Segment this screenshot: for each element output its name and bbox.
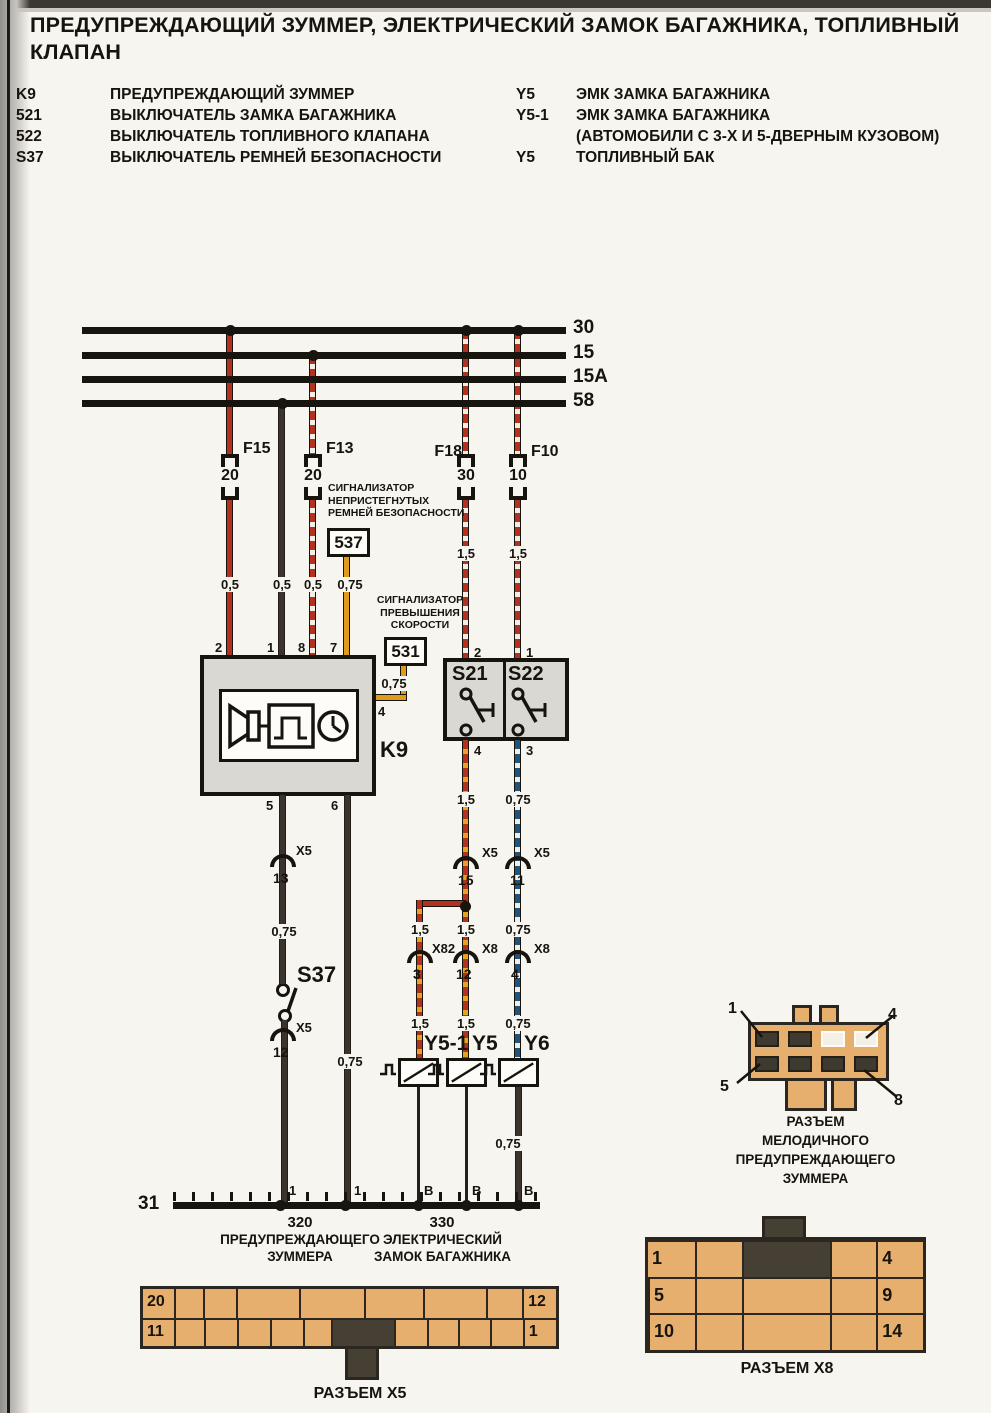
connector-symbol-x5-11	[505, 856, 531, 869]
connector-pin: 3	[413, 966, 421, 982]
fuse-f10-rating: 10	[509, 467, 527, 485]
wire-537-to-k9	[343, 556, 350, 655]
fuse-f15-symbol	[221, 454, 239, 467]
connector-symbol-x8-12	[453, 950, 479, 963]
bus-58	[82, 400, 566, 407]
ground-pin: 1	[354, 1183, 361, 1198]
wire-58-to-k9	[278, 403, 285, 655]
buzzer-pin-5: 5	[720, 1078, 729, 1096]
junction-dot	[460, 901, 471, 912]
x8-cell: 14	[876, 1313, 923, 1350]
wire-gauge: 0,75	[269, 924, 298, 939]
wire-branch-horizontal	[416, 900, 466, 907]
x5-cell	[174, 1289, 204, 1318]
x5-cell	[299, 1289, 363, 1318]
x5-cell	[364, 1289, 423, 1318]
k9-pin-4: 4	[378, 704, 385, 719]
x5-row-top: 20 12	[143, 1289, 556, 1318]
x5-cell	[270, 1318, 303, 1347]
wire-y51-ground	[417, 1087, 420, 1204]
speed-warning-caption: СИГНАЛИЗАТОР ПРЕВЫШЕНИЯ СКОРОСТИ	[358, 594, 482, 632]
junction-dot	[308, 350, 319, 361]
ground-pin: В	[524, 1183, 533, 1198]
x5-cell	[394, 1318, 427, 1347]
junction-dot	[461, 1200, 472, 1211]
k9-pin-5: 5	[266, 798, 273, 813]
buzzer-pin-4: 4	[888, 1006, 897, 1024]
buzzer-connector-title: РАЗЪЕМ МЕЛОДИЧНОГО ПРЕДУПРЕЖДАЮЩЕГО ЗУММ…	[733, 1112, 898, 1188]
s21-label: S21	[452, 663, 488, 686]
s22-label: S22	[508, 663, 544, 686]
fuse-f15-symbol	[221, 487, 239, 500]
bus-15a-label: 15A	[573, 366, 608, 388]
wire-gauge: 1,5	[455, 792, 477, 807]
x8-connector-title: РАЗЪЕМ X8	[707, 1360, 867, 1378]
junction-dot	[461, 325, 472, 336]
connector-symbol-x5-15	[453, 856, 479, 869]
fuse-f10-label: F10	[531, 443, 559, 461]
junction-dot	[413, 1200, 424, 1211]
wire-s22-out	[514, 740, 521, 1062]
y51-pulse-icon	[379, 1062, 397, 1078]
ground-point-id: 330	[412, 1214, 472, 1231]
x8-cell	[742, 1313, 830, 1350]
legend-desc: ЭМК ЗАМКА БАГАЖНИКА	[576, 107, 770, 125]
junction-dot	[277, 398, 288, 409]
legend-desc: ПРЕДУПРЕЖДАЮЩИЙ ЗУММЕР	[110, 86, 354, 104]
legend-code: Y5	[516, 149, 535, 167]
wire-f15-feed	[226, 330, 233, 456]
wire-gauge: 0,75	[335, 577, 364, 592]
legend-desc: ТОПЛИВНЫЙ БАК	[576, 149, 715, 167]
wire-gauge: 1,5	[455, 546, 477, 561]
wiring-diagram-page: ПРЕДУПРЕЖДАЮЩИЙ ЗУММЕР, ЭЛЕКТРИЧЕСКИЙ ЗА…	[0, 0, 991, 1413]
s21-switch-icon	[446, 686, 498, 744]
y5-label: Y5	[472, 1032, 498, 1056]
legend-desc: ВЫКЛЮЧАТЕЛЬ ЗАМКА БАГАЖНИКА	[110, 107, 396, 125]
fuse-f13-symbol	[304, 487, 322, 500]
x8-cell	[695, 1313, 742, 1350]
k9-pin-8: 8	[298, 640, 305, 655]
bus-31	[173, 1202, 540, 1209]
wire-f10-to-s22	[514, 499, 521, 658]
wire-f18-feed	[462, 330, 469, 456]
x5-cell	[458, 1318, 489, 1347]
wire-gauge: 1,5	[409, 1016, 431, 1031]
x8-cell: 9	[876, 1277, 923, 1314]
bus-30-label: 30	[573, 317, 594, 339]
fuse-f15-rating: 20	[221, 467, 239, 485]
k9-pin-2: 2	[215, 640, 222, 655]
wire-k9-pin5-down	[279, 795, 286, 986]
x5-cell: 12	[522, 1289, 556, 1318]
x8-keyway-cell	[742, 1240, 830, 1277]
x5-cell: 11	[143, 1318, 174, 1347]
junction-dot	[513, 325, 524, 336]
wire-gauge: 1,5	[507, 546, 529, 561]
legend-desc: (АВТОМОБИЛИ С 3-Х И 5-ДВЕРНЫМ КУЗОВОМ)	[576, 128, 939, 146]
k9-pin-1: 1	[267, 640, 274, 655]
ground-point-id: 320	[270, 1214, 330, 1231]
x8-cell: 5	[648, 1277, 695, 1314]
wire-gauge: 0,75	[503, 792, 532, 807]
s21-pin-bottom: 4	[474, 743, 481, 758]
page-title: ПРЕДУПРЕЖДАЮЩИЙ ЗУММЕР, ЭЛЕКТРИЧЕСКИЙ ЗА…	[30, 12, 970, 66]
k9-pin-7: 7	[330, 640, 337, 655]
fuse-f13-rating: 20	[304, 467, 322, 485]
k9-pin-6: 6	[331, 798, 338, 813]
wire-gauge: 0,5	[302, 577, 324, 592]
ground-pin: В	[472, 1183, 481, 1198]
wire-gauge: 0,75	[503, 1016, 532, 1031]
x8-cell: 4	[876, 1240, 923, 1277]
x5-cell: 1	[523, 1318, 556, 1347]
connector-symbol-x8-4	[505, 950, 531, 963]
connector-pin: 11	[510, 872, 525, 888]
legend-desc: ЭМК ЗАМКА БАГАЖНИКА	[576, 86, 770, 104]
legend-code: 521	[16, 107, 42, 125]
fuse-f18-symbol	[457, 454, 475, 467]
y6-valve-symbol	[498, 1058, 539, 1087]
fuse-f10-symbol	[509, 487, 527, 500]
ground-pin: В	[424, 1183, 433, 1198]
ground-pin: 1	[289, 1183, 296, 1198]
wire-gauge: 1,5	[455, 922, 477, 937]
bus-15	[82, 352, 566, 359]
wire-gauge: 0,75	[379, 676, 408, 691]
x5-cell	[423, 1289, 486, 1318]
connector-pin: 15	[458, 872, 474, 888]
x8-cell: 10	[648, 1313, 695, 1350]
wire-531-to-k9	[372, 694, 407, 701]
junction-dot	[340, 1200, 351, 1211]
wire-gauge: 0,75	[335, 1054, 364, 1069]
connector-name: X8	[482, 941, 498, 956]
connector-name: X82	[432, 941, 455, 956]
bus-15a	[82, 376, 566, 383]
junction-dot	[225, 325, 236, 336]
wire-f10-feed	[514, 330, 521, 456]
k9-buzzer-symbol	[219, 689, 359, 762]
page-left-line	[7, 0, 10, 1413]
x5-cell	[490, 1318, 523, 1347]
y6-label: Y6	[524, 1032, 550, 1056]
x8-cell	[742, 1277, 830, 1314]
connector-name: X5	[296, 1020, 312, 1035]
bus-30	[82, 327, 566, 334]
connector-pin: 4	[511, 966, 519, 982]
x5-cell	[174, 1318, 204, 1347]
s22-switch-icon	[498, 686, 550, 744]
x8-cell	[830, 1313, 877, 1350]
x8-cell: 1	[648, 1240, 695, 1277]
connector-x8-pinout: 1 4 5 9 10 14	[645, 1237, 926, 1353]
legend-code: K9	[16, 86, 36, 104]
legend-code: 522	[16, 128, 42, 146]
x5-cell	[204, 1318, 237, 1347]
x5-cell	[203, 1289, 236, 1318]
s22-pin-bottom: 3	[526, 743, 533, 758]
connector-x5-pinout: 20 12 11 1	[140, 1286, 559, 1349]
x5-cell	[237, 1318, 270, 1347]
belt-warning-caption: СИГНАЛИЗАТОР НЕПРИСТЕГНУТЫХ РЕМНЕЙ БЕЗОП…	[328, 482, 498, 520]
connector-symbol-x82-3	[407, 950, 433, 963]
x5-keyway-tab	[345, 1346, 379, 1380]
wire-gauge: 0,5	[271, 577, 293, 592]
legend-code: Y5	[516, 86, 535, 104]
x8-cell	[695, 1277, 742, 1314]
x8-cell	[695, 1240, 742, 1277]
wire-gauge: 1,5	[455, 1016, 477, 1031]
legend-desc: ВЫКЛЮЧАТЕЛЬ РЕМНЕЙ БЕЗОПАСНОСТИ	[110, 149, 441, 167]
x5-connector-title: РАЗЪЕМ X5	[275, 1385, 445, 1403]
wire-f18-to-s21	[462, 499, 469, 658]
connector-pin: 12	[456, 966, 472, 982]
x8-cell	[830, 1240, 877, 1277]
buzzer-icon	[222, 692, 356, 759]
junction-dot	[513, 1200, 524, 1211]
x5-cell	[427, 1318, 458, 1347]
connector-pin: 13	[273, 870, 289, 886]
belt-warning-box: 537	[327, 528, 370, 557]
bus-31-label: 31	[138, 1193, 159, 1215]
connector-pin: 12	[273, 1044, 289, 1060]
x8-cell	[830, 1277, 877, 1314]
wire-k9-pin6-down	[344, 795, 351, 1204]
wire-gauge: 0,75	[493, 1136, 522, 1151]
legend-code: S37	[16, 149, 44, 167]
x5-keyway-cell	[331, 1318, 394, 1347]
legend-code: Y5-1	[516, 107, 549, 125]
connector-name: X5	[534, 845, 550, 860]
page-left-margin	[0, 0, 30, 1413]
wire-gauge: 0,5	[219, 577, 241, 592]
x5-cell	[303, 1318, 331, 1347]
fuse-f13-label: F13	[326, 440, 354, 458]
bus-15-label: 15	[573, 342, 594, 364]
connector-name: X8	[534, 941, 550, 956]
bus-58-label: 58	[573, 390, 594, 412]
k9-label: K9	[380, 737, 408, 763]
junction-dot	[275, 1200, 286, 1211]
x5-cell	[236, 1289, 299, 1318]
connector-symbol-x5-13	[270, 854, 296, 867]
x5-cell	[486, 1289, 522, 1318]
buzzer-pin-8: 8	[894, 1092, 903, 1110]
wire-gauge: 0,75	[503, 922, 532, 937]
speed-warning-box: 531	[384, 637, 427, 666]
x5-cell: 20	[143, 1289, 174, 1318]
fuse-f10-symbol	[509, 454, 527, 467]
y5-pulse-icon	[427, 1062, 445, 1078]
buzzer-pin-1: 1	[728, 1000, 737, 1018]
buzzer-leader-lines	[718, 995, 908, 1110]
y6-pulse-icon	[479, 1062, 497, 1078]
fuse-f15-label: F15	[243, 440, 271, 458]
ground-point-name: ЭЛЕКТРИЧЕСКИЙ ЗАМОК БАГАЖНИКА	[330, 1231, 555, 1265]
x5-row-bottom: 11 1	[143, 1318, 556, 1347]
page-top-edge	[0, 0, 991, 8]
wire-y5-ground	[465, 1087, 468, 1204]
y51-label: Y5-1	[424, 1032, 468, 1056]
connector-name: X5	[296, 843, 312, 858]
connector-name: X5	[482, 845, 498, 860]
fuse-f13-symbol	[304, 454, 322, 467]
legend-desc: ВЫКЛЮЧАТЕЛЬ ТОПЛИВНОГО КЛАПАНА	[110, 128, 430, 146]
wire-gauge: 1,5	[409, 922, 431, 937]
